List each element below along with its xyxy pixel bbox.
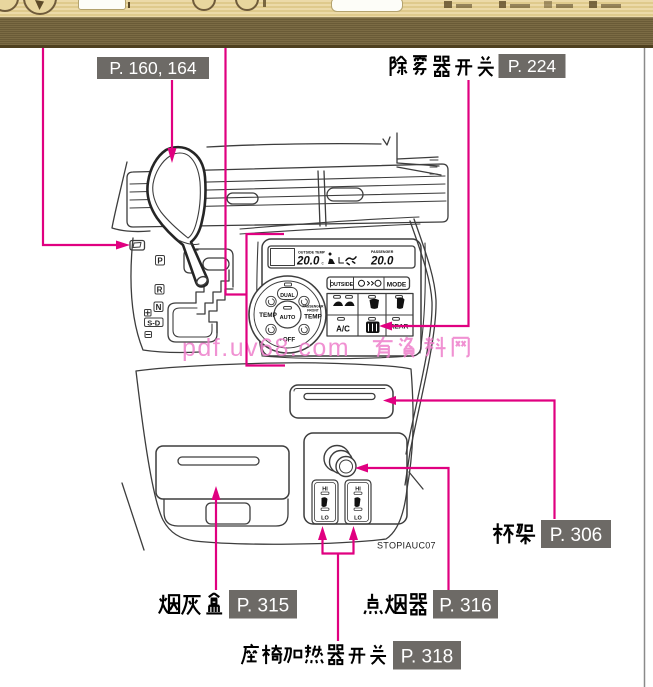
- svg-text:P. 160, 164: P. 160, 164: [109, 58, 197, 78]
- svg-text:P. 306: P. 306: [550, 525, 602, 546]
- svg-text:TEMP: TEMP: [259, 312, 277, 319]
- svg-text:LO: LO: [321, 516, 329, 522]
- svg-text:S-D: S-D: [147, 318, 161, 327]
- svg-text:TEMP: TEMP: [304, 314, 322, 321]
- svg-text:AUTO: AUTO: [280, 315, 296, 321]
- svg-text:OUTSIDE TEMP: OUTSIDE TEMP: [298, 251, 326, 255]
- svg-text:A/C: A/C: [336, 325, 350, 334]
- svg-text:pdf.uv68.com: pdf.uv68.com: [182, 334, 350, 362]
- svg-text:20.0: 20.0: [296, 256, 320, 268]
- svg-text:c: c: [322, 261, 325, 266]
- svg-text:P. 318: P. 318: [401, 647, 453, 668]
- svg-text:N: N: [156, 303, 162, 312]
- svg-text:P. 315: P. 315: [237, 596, 289, 617]
- svg-text:P. 316: P. 316: [439, 596, 491, 617]
- svg-text:DUAL: DUAL: [280, 293, 295, 299]
- svg-text:P. 224: P. 224: [508, 56, 557, 76]
- svg-text:OUTSIDE: OUTSIDE: [330, 282, 354, 288]
- svg-text:R: R: [157, 286, 163, 295]
- svg-text:FRONT: FRONT: [307, 309, 320, 313]
- svg-text:MODE: MODE: [387, 281, 407, 288]
- svg-text:P: P: [157, 257, 163, 266]
- svg-text:20.0: 20.0: [370, 256, 394, 268]
- svg-text:LO: LO: [354, 516, 362, 522]
- svg-text:STOPIAUC07: STOPIAUC07: [377, 541, 436, 551]
- svg-text:PASSENGER: PASSENGER: [371, 250, 394, 254]
